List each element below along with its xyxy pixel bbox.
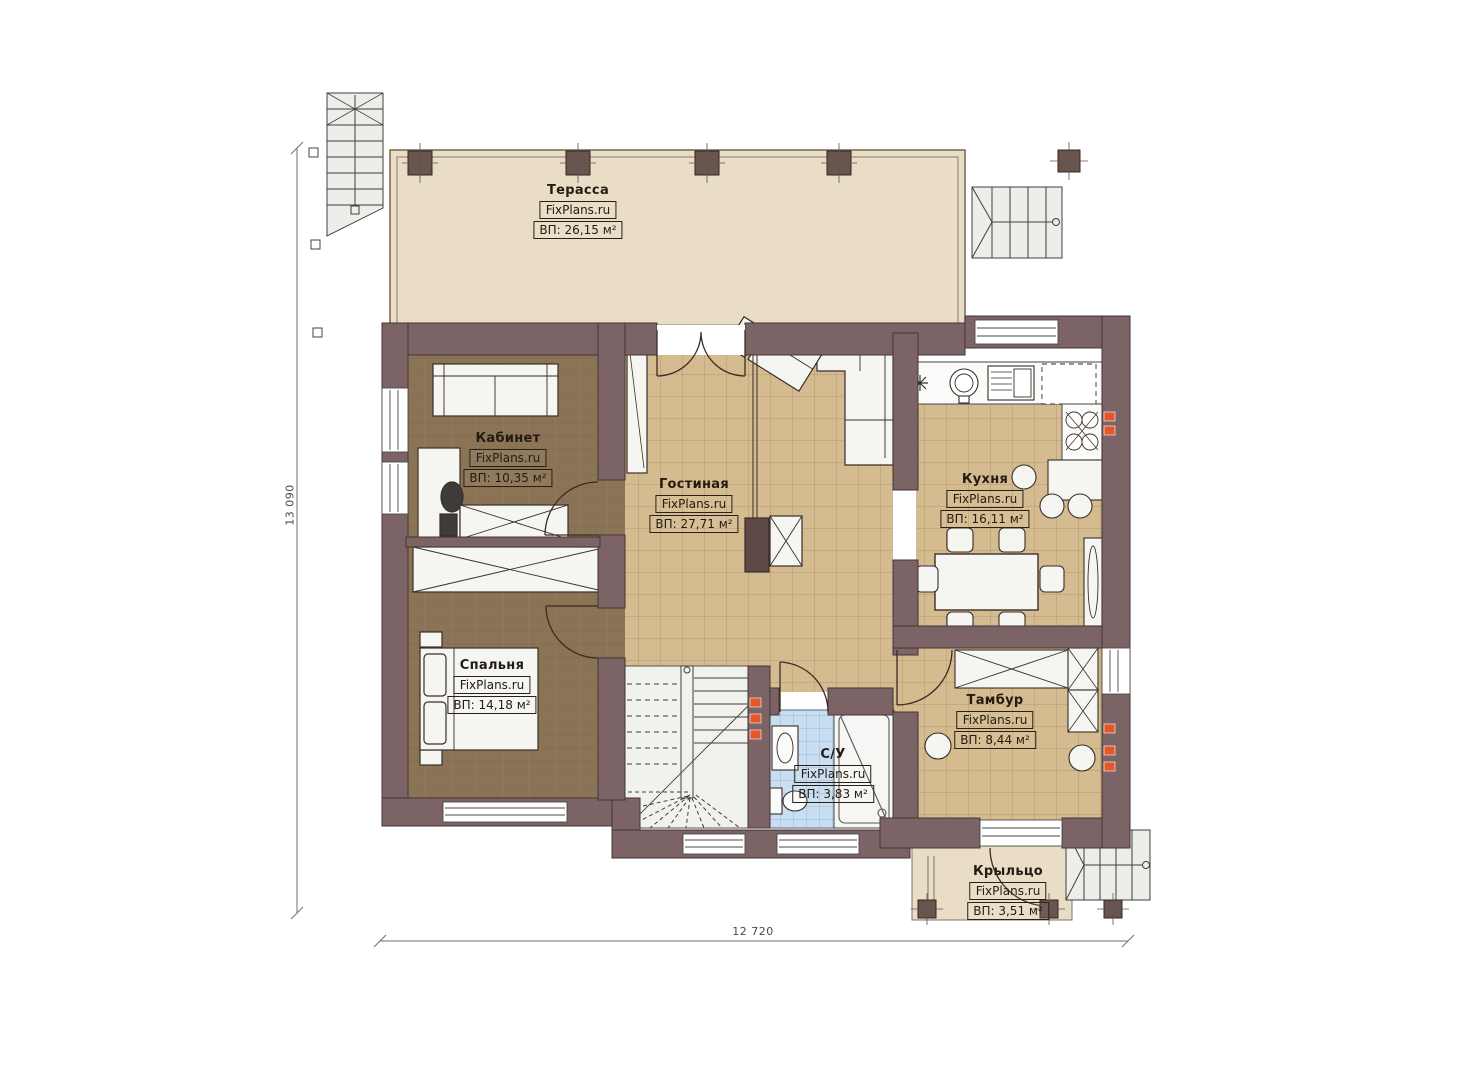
window	[1102, 648, 1130, 694]
room-label-porch: Крыльцо FixPlans.ru ВП: 3,51 м²	[967, 864, 1049, 920]
window	[382, 388, 408, 452]
terrace-deck	[390, 150, 965, 330]
wall-office-bedroom	[406, 537, 600, 547]
brand-box: FixPlans.ru	[795, 765, 872, 783]
brand-box: FixPlans.ru	[540, 201, 617, 219]
room-name: Крыльцо	[973, 864, 1043, 879]
window	[683, 834, 745, 854]
window	[382, 462, 408, 514]
kitchen-sink	[950, 369, 978, 397]
dining-chair	[947, 528, 973, 552]
exterior-stair-top-right	[972, 187, 1062, 258]
wall-stairbay-bottom	[612, 830, 910, 858]
office-door-floor	[598, 480, 625, 535]
window	[975, 320, 1058, 344]
stool	[1040, 494, 1064, 518]
dining-chair	[999, 528, 1025, 552]
pouf	[925, 733, 951, 759]
stool	[1068, 494, 1092, 518]
nightstand	[420, 750, 442, 765]
room-label-bedroom: Спальня FixPlans.ru ВП: 14,18 м²	[447, 658, 536, 714]
wall-bath-top-b	[828, 688, 893, 715]
dining-chair	[916, 566, 938, 592]
brand-box: FixPlans.ru	[454, 676, 531, 694]
dining-chair	[1040, 566, 1064, 592]
area-box: ВП: 10,35 м²	[463, 469, 552, 487]
partition-column	[745, 518, 769, 572]
dimension-left: 13 090	[284, 484, 297, 526]
sink-faucet	[959, 396, 969, 403]
office-sofa	[433, 364, 558, 416]
room-name: Терасса	[547, 183, 609, 198]
tv-unit	[770, 516, 802, 566]
bedroom-door-floor	[598, 608, 625, 658]
wall-vestibule-bottom-left	[880, 818, 980, 848]
room-label-kitchen: Кухня FixPlans.ru ВП: 16,11 м²	[940, 472, 1029, 528]
area-box: ВП: 8,44 м²	[954, 731, 1036, 749]
wall-bath-vestibule	[893, 712, 918, 818]
terrace-door-threshold	[657, 325, 745, 355]
yard-post	[1050, 142, 1088, 180]
room-label-vestibule: Тамбур FixPlans.ru ВП: 8,44 м²	[954, 693, 1036, 749]
nightstand	[420, 632, 442, 647]
bedroom-wardrobe	[413, 547, 607, 592]
room-label-terrace: Терасса FixPlans.ru ВП: 26,15 м²	[533, 183, 622, 239]
brand-box: FixPlans.ru	[656, 495, 733, 513]
wall-living-kitchen-a	[893, 333, 918, 490]
wall-vestibule-top	[893, 626, 1102, 648]
room-name: Кухня	[962, 472, 1008, 487]
room-name: Кабинет	[475, 431, 540, 446]
area-box: ВП: 16,11 м²	[940, 510, 1029, 528]
area-box: ВП: 14,18 м²	[447, 696, 536, 714]
kitchen-oven	[988, 366, 1034, 400]
dimension-bottom: 12 720	[732, 925, 774, 938]
wall-vestibule-bottom-right	[1062, 818, 1102, 848]
room-label-office: Кабинет FixPlans.ru ВП: 10,35 м²	[463, 431, 552, 487]
brand-box: FixPlans.ru	[947, 490, 1024, 508]
bar-table	[1048, 460, 1102, 500]
window	[777, 834, 859, 854]
floor-plan-drawing	[0, 0, 1473, 1080]
brand-box: FixPlans.ru	[470, 449, 547, 467]
plant-cabinet	[1084, 538, 1102, 626]
fridge-space	[1042, 364, 1096, 404]
brand-box: FixPlans.ru	[970, 882, 1047, 900]
area-box: ВП: 26,15 м²	[533, 221, 622, 239]
room-name: Гостиная	[659, 477, 729, 492]
area-box: ВП: 3,83 м²	[792, 785, 874, 803]
floor-plan-page: Терасса FixPlans.ru ВП: 26,15 м² Кабинет…	[0, 0, 1473, 1080]
area-box: ВП: 3,51 м²	[967, 902, 1049, 920]
hall-cabinet	[1068, 648, 1098, 732]
hall-wardrobe	[955, 650, 1068, 688]
window	[443, 802, 567, 822]
entry-threshold	[980, 820, 1062, 846]
pillow	[424, 654, 446, 696]
room-name: Спальня	[460, 658, 524, 673]
area-box: ВП: 27,71 м²	[649, 515, 738, 533]
office-wardrobe	[460, 505, 568, 539]
wall-top-right	[745, 323, 965, 355]
wall-office-living-a	[598, 323, 625, 480]
brand-box: FixPlans.ru	[957, 711, 1034, 729]
dining-table	[935, 554, 1038, 610]
exterior-stair-top-left	[327, 93, 383, 236]
room-name: С/У	[820, 747, 845, 762]
pillow	[424, 702, 446, 744]
room-name: Тамбур	[967, 693, 1024, 708]
wall-office-living-b	[598, 535, 625, 608]
side-counter	[1062, 404, 1102, 462]
room-label-living: Гостиная FixPlans.ru ВП: 27,71 м²	[649, 477, 738, 533]
pouf	[1069, 745, 1095, 771]
wall-stair-column	[748, 666, 770, 828]
room-label-bathroom: С/У FixPlans.ru ВП: 3,83 м²	[792, 747, 874, 803]
office-pc	[440, 514, 457, 536]
wall-hall-bedroom	[598, 658, 625, 800]
